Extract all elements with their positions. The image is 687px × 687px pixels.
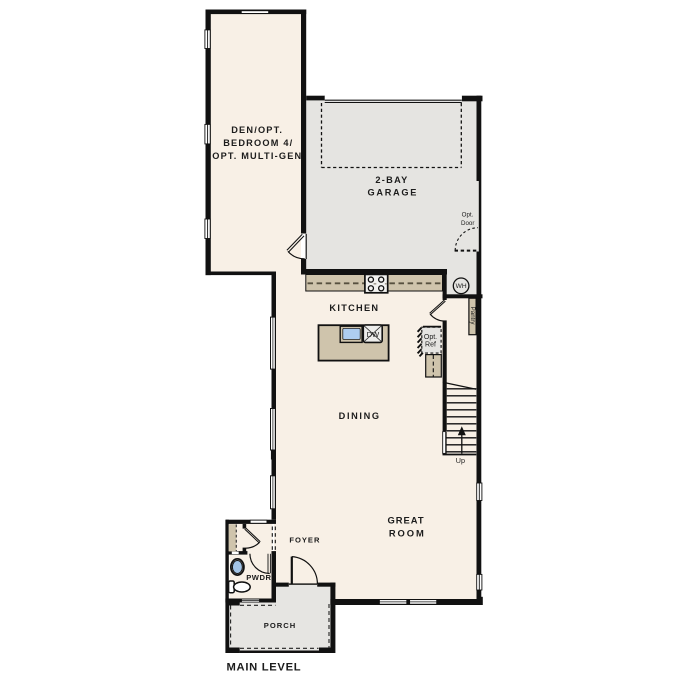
svg-text:Door: Door [461, 220, 474, 227]
svg-text:ROOM: ROOM [389, 527, 426, 538]
svg-text:BEDROOM 4/: BEDROOM 4/ [223, 138, 293, 148]
svg-text:GARAGE: GARAGE [368, 188, 419, 198]
svg-text:GREAT: GREAT [387, 514, 424, 525]
svg-text:Pantry: Pantry [469, 307, 476, 326]
svg-text:FOYER: FOYER [289, 536, 320, 545]
svg-text:DW: DW [367, 330, 380, 339]
svg-text:Opt.: Opt. [424, 334, 437, 341]
svg-text:MAIN LEVEL: MAIN LEVEL [227, 661, 302, 673]
svg-text:DEN/OPT.: DEN/OPT. [231, 125, 283, 135]
svg-text:Ref: Ref [425, 342, 436, 349]
svg-text:Opt.: Opt. [462, 212, 474, 219]
svg-text:PWDR: PWDR [246, 573, 271, 582]
svg-text:KITCHEN: KITCHEN [329, 303, 379, 313]
svg-text:Up: Up [456, 456, 465, 465]
svg-text:WH: WH [456, 283, 467, 290]
svg-text:DINING: DINING [339, 411, 381, 421]
svg-text:2-BAY: 2-BAY [375, 175, 408, 185]
svg-text:OPT. MULTI-GEN: OPT. MULTI-GEN [212, 151, 302, 161]
svg-text:PORCH: PORCH [264, 621, 296, 630]
